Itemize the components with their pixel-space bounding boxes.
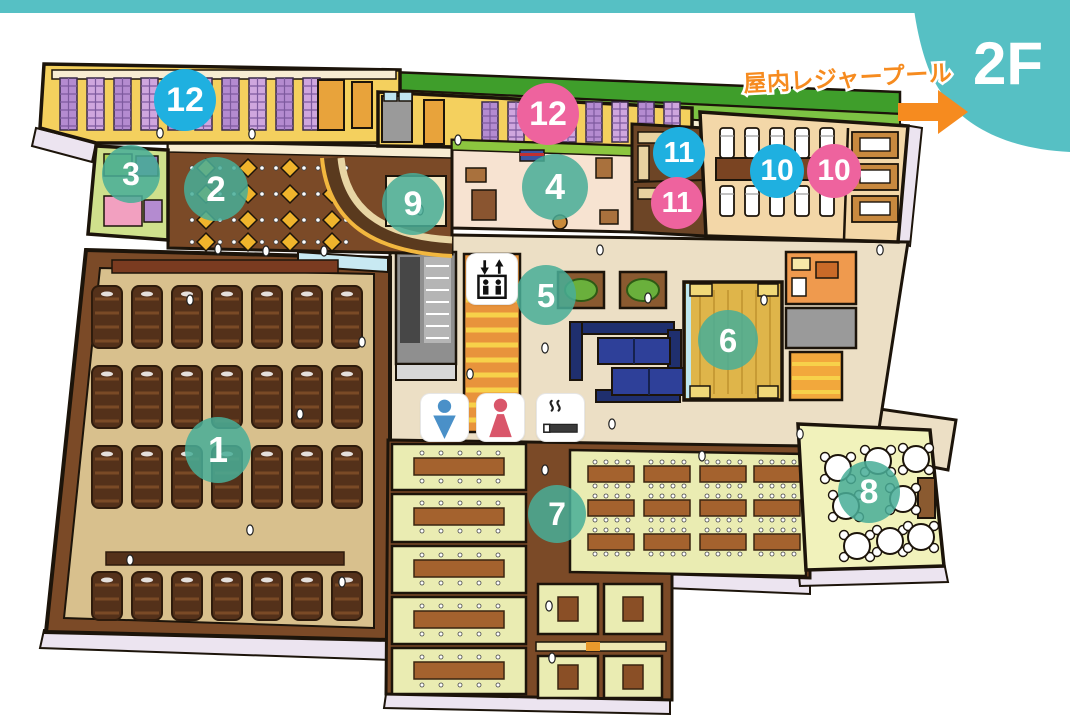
map-marker-6-teal: 6 (698, 310, 758, 370)
map-marker-8-teal: 8 (838, 461, 900, 523)
map-marker-10-pink: 10 (807, 144, 861, 198)
map-marker-1-teal: 1 (185, 417, 251, 483)
map-marker-3-teal: 3 (102, 145, 160, 203)
map-marker-10-blue: 10 (750, 144, 804, 198)
map-marker-2-teal: 2 (184, 157, 248, 221)
map-marker-9-teal: 9 (382, 173, 444, 235)
floor-map-page: 2F 屋内レジャープール 123456789101011111212 (0, 0, 1070, 720)
map-marker-11-pink: 11 (651, 177, 703, 229)
smoking-area-icon (537, 394, 584, 441)
map-marker-4-teal: 4 (522, 154, 588, 220)
map-marker-12-pink: 12 (517, 83, 579, 145)
marker-overlay: 123456789101011111212 (0, 0, 1070, 720)
map-marker-5-teal: 5 (516, 265, 576, 325)
womens-restroom-icon (477, 394, 524, 441)
elevator-icon (467, 254, 517, 304)
map-marker-11-blue: 11 (653, 127, 705, 179)
mens-restroom-icon (421, 394, 468, 441)
map-marker-7-teal: 7 (528, 485, 586, 543)
map-marker-12-blue: 12 (154, 69, 216, 131)
